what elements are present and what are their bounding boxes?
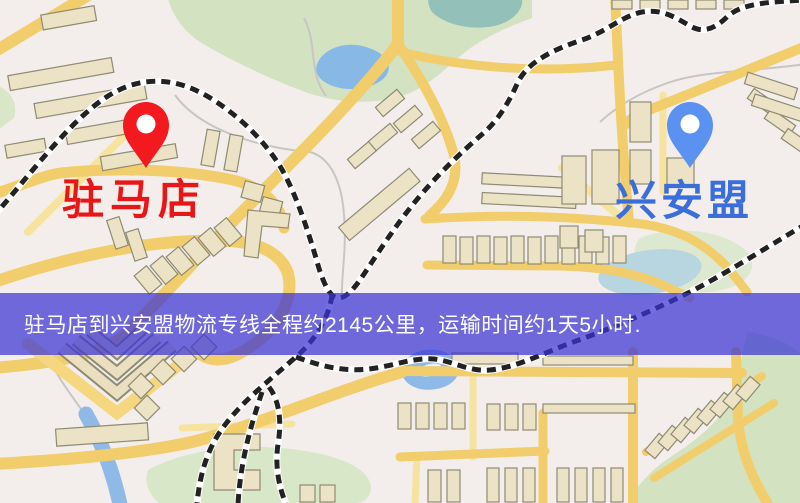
route-banner: 驻马店到兴安盟物流专线全程约2145公里，运输时间约1天5小时.: [0, 293, 800, 355]
destination-label: 兴安盟: [615, 180, 753, 222]
origin-label: 驻马店: [62, 179, 206, 221]
pin-hole: [137, 115, 156, 134]
base-map: [0, 0, 800, 503]
pin-hole: [681, 115, 700, 134]
map-canvas: 驻马店 兴安盟 驻马店到兴安盟物流专线全程约2145公里，运输时间约1天5小时.: [0, 0, 800, 503]
route-banner-text: 驻马店到兴安盟物流专线全程约2145公里，运输时间约1天5小时.: [0, 309, 641, 339]
